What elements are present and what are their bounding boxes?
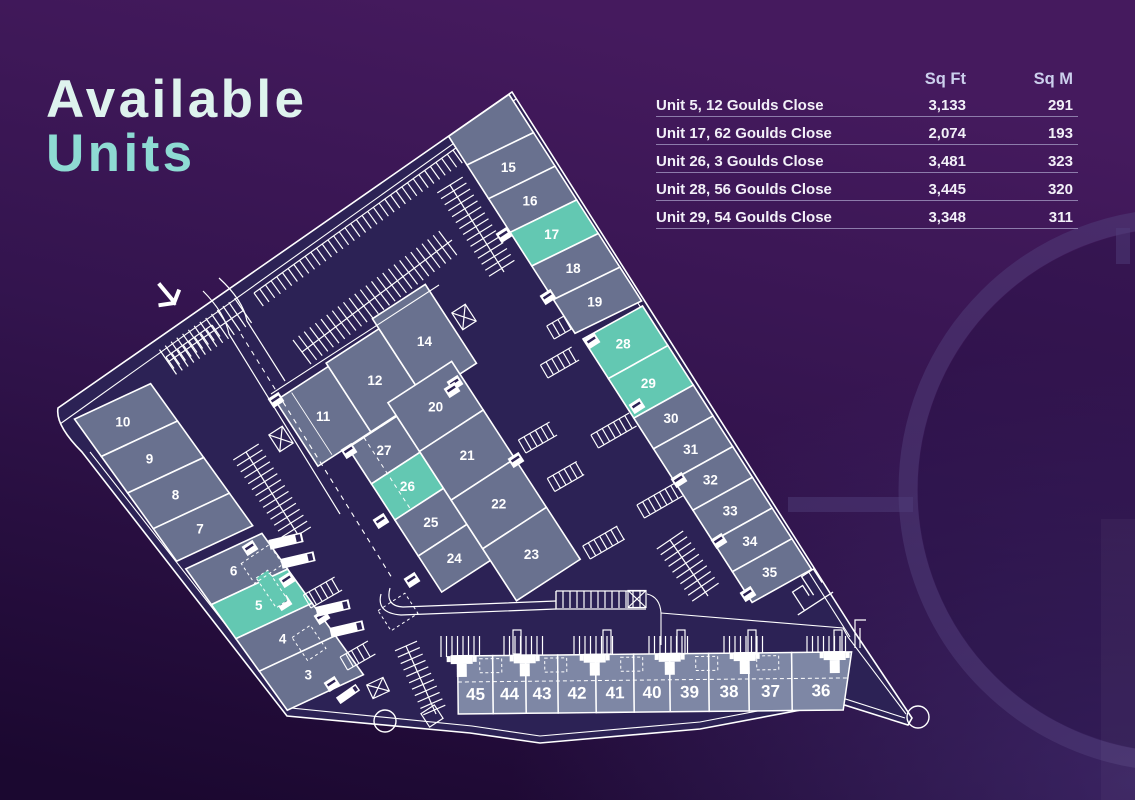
svg-text:10: 10 — [115, 414, 130, 429]
svg-text:3,133: 3,133 — [928, 97, 966, 114]
svg-text:193: 193 — [1048, 125, 1073, 142]
svg-text:34: 34 — [742, 534, 758, 549]
svg-text:291: 291 — [1048, 97, 1073, 114]
svg-text:23: 23 — [524, 547, 540, 562]
svg-text:31: 31 — [683, 442, 699, 457]
svg-text:323: 323 — [1048, 153, 1073, 170]
svg-text:Unit 28, 56 Goulds Close: Unit 28, 56 Goulds Close — [656, 181, 832, 198]
svg-text:40: 40 — [642, 683, 661, 702]
svg-text:30: 30 — [663, 411, 678, 426]
svg-text:37: 37 — [761, 682, 780, 701]
svg-text:Sq Ft: Sq Ft — [925, 70, 967, 88]
svg-text:3,445: 3,445 — [928, 181, 966, 198]
svg-text:15: 15 — [501, 160, 517, 175]
svg-text:4: 4 — [279, 631, 287, 646]
svg-text:311: 311 — [1049, 209, 1073, 226]
svg-text:Unit 5, 12 Goulds Close: Unit 5, 12 Goulds Close — [656, 97, 824, 114]
svg-text:20: 20 — [428, 399, 443, 414]
svg-text:36: 36 — [811, 681, 830, 700]
svg-text:Unit 29, 54 Goulds Close: Unit 29, 54 Goulds Close — [656, 209, 832, 226]
svg-text:Available: Available — [46, 70, 307, 129]
svg-text:7: 7 — [196, 521, 204, 536]
svg-text:28: 28 — [616, 336, 632, 351]
svg-text:14: 14 — [417, 334, 433, 349]
svg-text:29: 29 — [641, 376, 656, 391]
svg-text:25: 25 — [423, 515, 439, 530]
svg-text:Unit 17, 62 Goulds Close: Unit 17, 62 Goulds Close — [656, 125, 832, 142]
svg-text:19: 19 — [587, 294, 602, 309]
svg-text:32: 32 — [703, 473, 718, 488]
svg-text:22: 22 — [491, 497, 506, 512]
svg-text:3: 3 — [305, 667, 313, 682]
svg-text:8: 8 — [172, 487, 180, 502]
svg-text:43: 43 — [532, 684, 551, 703]
svg-text:3,481: 3,481 — [928, 153, 966, 170]
svg-text:41: 41 — [605, 683, 624, 702]
svg-text:16: 16 — [522, 193, 538, 208]
svg-text:18: 18 — [566, 261, 582, 276]
svg-text:9: 9 — [146, 451, 154, 466]
svg-text:27: 27 — [377, 443, 392, 458]
svg-text:17: 17 — [544, 227, 559, 242]
svg-text:2,074: 2,074 — [928, 125, 966, 142]
svg-text:39: 39 — [680, 682, 699, 701]
svg-text:11: 11 — [316, 409, 331, 424]
svg-text:45: 45 — [466, 685, 485, 704]
svg-text:320: 320 — [1048, 181, 1073, 198]
svg-text:3,348: 3,348 — [928, 209, 966, 226]
svg-text:38: 38 — [719, 682, 738, 701]
svg-text:21: 21 — [460, 448, 476, 463]
svg-text:33: 33 — [723, 503, 739, 518]
svg-text:6: 6 — [230, 563, 238, 578]
svg-text:42: 42 — [567, 684, 586, 703]
svg-text:Unit 26, 3 Goulds Close: Unit 26, 3 Goulds Close — [656, 153, 824, 170]
svg-text:Units: Units — [46, 124, 196, 183]
svg-text:24: 24 — [447, 551, 463, 566]
svg-text:12: 12 — [367, 373, 382, 388]
svg-text:5: 5 — [255, 598, 263, 613]
svg-text:26: 26 — [400, 479, 416, 494]
svg-text:44: 44 — [500, 684, 520, 703]
svg-text:Sq M: Sq M — [1034, 70, 1073, 88]
svg-text:35: 35 — [762, 565, 778, 580]
